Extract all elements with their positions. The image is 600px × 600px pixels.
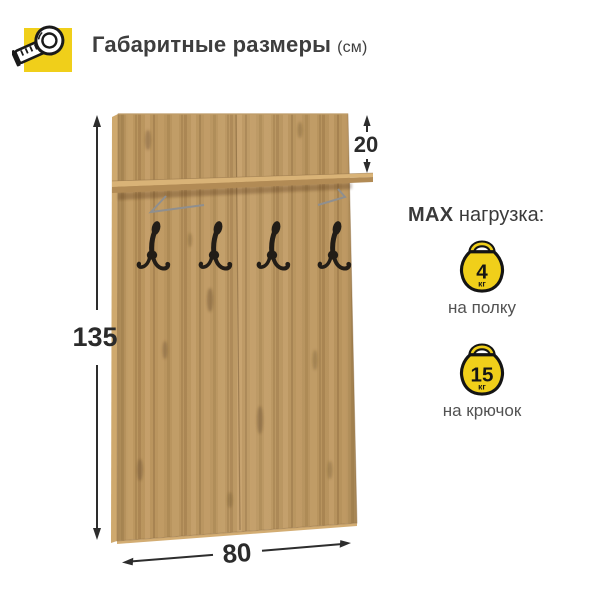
kettlebell-unit: кг: [478, 382, 486, 392]
max-load-title-rest: нагрузка:: [453, 204, 544, 226]
kettlebell-unit: кг: [478, 279, 486, 289]
shelf-offset-dimension: 20: [354, 115, 378, 173]
width-dimension-label: 80: [221, 537, 252, 569]
load-target-label: на крючок: [443, 401, 522, 421]
load-item-shelf: 4 кг на полку: [448, 237, 516, 318]
max-load-title: MAX нагрузка:: [408, 204, 544, 227]
load-target-label: на полку: [448, 298, 516, 318]
max-load-title-strong: MAX: [408, 204, 453, 226]
max-load-panel: MAX нагрузка: 4 кг на полку 15 кг на крю…: [404, 204, 560, 421]
shelf-offset-dimension-label: 20: [354, 132, 378, 157]
load-item-hook: 15 кг на крючок: [443, 340, 522, 421]
height-dimension: 135: [72, 115, 117, 540]
kettlebell-icon: 15 кг: [458, 340, 506, 397]
coat-rack-panel: [111, 114, 373, 544]
width-dimension: 80: [122, 537, 351, 569]
kettlebell-icon: 4 кг: [458, 237, 506, 294]
height-dimension-label: 135: [72, 322, 117, 352]
